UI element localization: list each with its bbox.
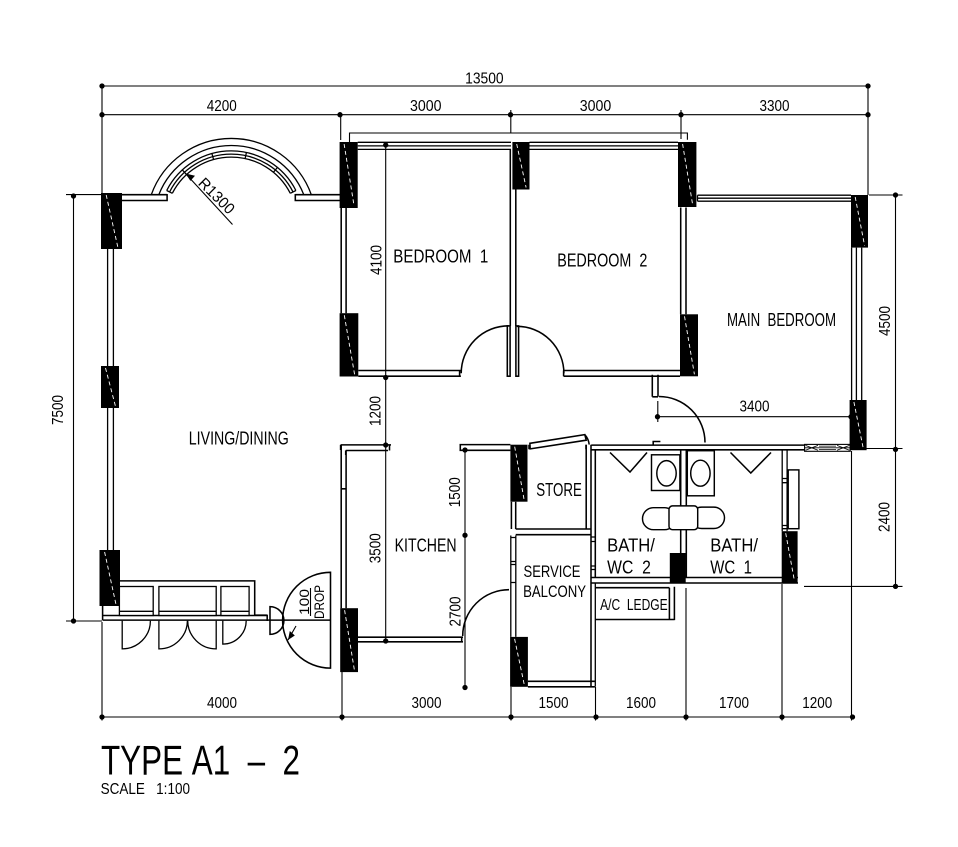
svg-text:BEDROOM 2: BEDROOM 2 bbox=[557, 251, 647, 271]
svg-text:2700: 2700 bbox=[448, 596, 465, 626]
svg-text:100: 100 bbox=[297, 589, 312, 615]
svg-text:MAIN BEDROOM: MAIN BEDROOM bbox=[727, 310, 836, 330]
svg-text:LIVING/DINING: LIVING/DINING bbox=[189, 429, 289, 449]
svg-text:BATH/: BATH/ bbox=[710, 536, 758, 556]
svg-text:BEDROOM 1: BEDROOM 1 bbox=[393, 247, 488, 267]
svg-text:DROP: DROP bbox=[312, 585, 327, 619]
svg-text:4100: 4100 bbox=[368, 245, 385, 275]
svg-text:3400: 3400 bbox=[740, 399, 770, 416]
svg-text:7500: 7500 bbox=[50, 395, 67, 425]
svg-text:SCALE 1:100: SCALE 1:100 bbox=[101, 781, 191, 798]
svg-text:4200: 4200 bbox=[207, 98, 237, 115]
svg-text:1600: 1600 bbox=[626, 695, 656, 712]
svg-text:1500: 1500 bbox=[447, 477, 464, 507]
svg-text:3000: 3000 bbox=[410, 98, 442, 115]
svg-text:2400: 2400 bbox=[877, 502, 894, 532]
svg-text:3000: 3000 bbox=[412, 695, 442, 712]
svg-text:WC 1: WC 1 bbox=[710, 558, 752, 578]
svg-text:13500: 13500 bbox=[465, 71, 504, 88]
svg-text:WC 2: WC 2 bbox=[607, 558, 651, 578]
svg-text:KITCHEN: KITCHEN bbox=[395, 536, 457, 556]
svg-text:1200: 1200 bbox=[802, 695, 832, 712]
svg-text:3500: 3500 bbox=[367, 533, 384, 563]
svg-text:3300: 3300 bbox=[760, 98, 790, 115]
svg-text:BATH/: BATH/ bbox=[607, 536, 655, 556]
svg-text:1200: 1200 bbox=[368, 396, 385, 426]
svg-text:1500: 1500 bbox=[539, 695, 569, 712]
svg-text:A/C LEDGE: A/C LEDGE bbox=[600, 597, 668, 614]
svg-text:STORE: STORE bbox=[536, 480, 582, 500]
svg-text:3000: 3000 bbox=[580, 98, 612, 115]
svg-text:BALCONY: BALCONY bbox=[523, 582, 586, 601]
svg-text:4000: 4000 bbox=[207, 695, 237, 712]
svg-text:4500: 4500 bbox=[877, 306, 894, 336]
svg-text:1700: 1700 bbox=[719, 695, 749, 712]
svg-text:TYPE A1 – 2: TYPE A1 – 2 bbox=[101, 736, 300, 783]
svg-text:SERVICE: SERVICE bbox=[524, 562, 581, 581]
